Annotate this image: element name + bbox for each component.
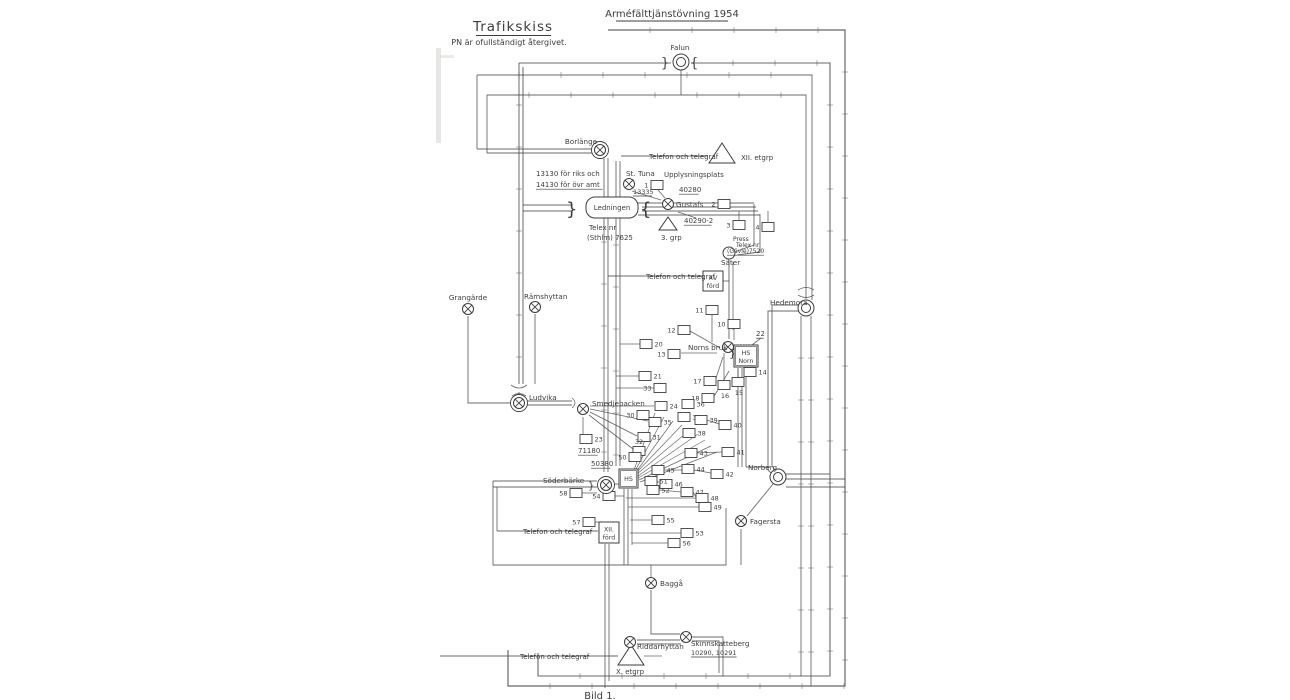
terminal-51: 51 — [645, 477, 668, 486]
unit-label: X. etgrp — [616, 668, 645, 676]
station-label: Ludvika — [529, 393, 557, 402]
annotation-text: 14130 för övr amt — [536, 181, 600, 189]
terminal-number: 40 — [734, 422, 742, 430]
terminal-53: 53 — [681, 529, 704, 538]
terminal-box — [629, 453, 641, 462]
station-label: Skinnskatteberg — [691, 639, 749, 648]
terminal-number: 41 — [737, 449, 745, 457]
terminal-number: 23 — [595, 436, 603, 444]
station-label: Borlänge — [565, 137, 598, 146]
station-fagersta: Fagersta — [736, 516, 781, 527]
terminal-box — [706, 306, 718, 315]
annotation-text: Telefon och telegraf — [522, 528, 593, 536]
terminal-number: 13 — [657, 351, 665, 359]
terminal-box — [696, 494, 708, 503]
terminal-38: 38 — [683, 429, 706, 438]
terminal-box — [732, 378, 744, 387]
unit-label: HS — [624, 476, 633, 483]
unit-label: XII. etgrp — [741, 154, 774, 162]
page-note: PN är ofullständigt återgivet. — [451, 37, 566, 47]
terminal-number: 53 — [696, 530, 704, 538]
annotation-text: (Gävle)7520 — [727, 248, 764, 255]
terminal-13: 13 — [657, 350, 680, 359]
terminal-box — [654, 384, 666, 393]
station-label: Fagersta — [750, 517, 781, 526]
terminal-box — [718, 200, 730, 209]
annotation-text: 13130 för riks och — [536, 170, 600, 178]
unit-label: Ledningen — [594, 204, 631, 212]
terminal-box — [704, 377, 716, 386]
station-number: 10290, 10291 — [691, 649, 737, 657]
unit-label: XII. — [604, 527, 614, 534]
brace-pinch-mark: } — [729, 347, 736, 360]
page-title: Trafikskiss — [472, 19, 553, 35]
annotation-text: 40290-2 — [684, 217, 713, 225]
terminal-2: 2 — [711, 200, 730, 209]
terminal-box — [681, 488, 693, 497]
station-label: Hedemora — [770, 298, 808, 307]
terminal-box — [652, 466, 664, 475]
terminal-33: 33 — [643, 384, 666, 393]
terminal-number: 32 — [635, 438, 643, 446]
unit-label: 3. grp — [661, 234, 682, 242]
terminal-box — [649, 418, 661, 427]
terminal-number: 3 — [726, 222, 730, 230]
terminal-number: 57 — [572, 519, 580, 527]
terminal-number: 30 — [626, 412, 634, 420]
terminal-52: 52 — [647, 486, 670, 495]
terminal-43: 43 — [685, 449, 708, 458]
terminal-number: 52 — [662, 487, 670, 495]
terminal-number: 44 — [697, 466, 705, 474]
terminal-number: 20 — [655, 341, 663, 349]
terminal-box — [733, 221, 745, 230]
scan-smudge — [440, 55, 454, 58]
brace-pinch-mark: { — [690, 56, 698, 71]
station-number: 13335 — [633, 188, 654, 196]
annotation-text: 22 — [756, 330, 765, 338]
figure-caption: Bild 1. — [584, 691, 615, 700]
terminal-box — [728, 320, 740, 329]
station-label: Riddarhyttan — [637, 642, 684, 651]
unit-label: Norn — [738, 358, 753, 365]
annotation-text: (Sthlm) 7625 — [587, 234, 633, 242]
terminal-number: 49 — [714, 504, 722, 512]
scan-smudge — [436, 48, 441, 143]
traffic-sketch-diagram: XII. etgrp3. grpX. etgrpXVfördXII.fördHS… — [0, 0, 1290, 700]
unit-ford-xii: XII.förd — [599, 522, 619, 543]
terminal-box — [681, 529, 693, 538]
terminal-box — [744, 368, 756, 377]
brace-pinch-mark: } — [566, 199, 577, 220]
terminal-number: 12 — [667, 327, 675, 335]
terminal-box — [695, 416, 707, 425]
terminal-box — [647, 486, 659, 495]
station-label: Falun — [671, 43, 690, 52]
terminal-number: 36 — [697, 401, 705, 409]
terminal-10: 10 — [717, 320, 740, 329]
terminal-box — [682, 465, 694, 474]
brace-pinch-mark: } — [588, 481, 594, 492]
terminal-box — [762, 223, 774, 232]
terminal-11: 11 — [695, 306, 718, 315]
terminal-box — [678, 326, 690, 335]
station-label: Säter — [721, 258, 740, 267]
terminal-44: 44 — [682, 465, 705, 474]
station-gustafs: Gustafs — [663, 199, 704, 210]
terminal-number: 45 — [667, 467, 675, 475]
terminal-box — [718, 381, 730, 390]
paper-background — [0, 0, 1290, 700]
station-norns-bruk: Norns bruk — [688, 342, 734, 353]
station-label: Smedjebacken — [592, 399, 645, 408]
terminal-box — [580, 435, 592, 444]
terminal-number: 54 — [592, 493, 600, 501]
terminal-49: 49 — [699, 503, 722, 512]
terminal-number: 24 — [670, 403, 678, 411]
terminal-57: 57 — [572, 518, 595, 527]
station-label: Baggå — [660, 579, 683, 588]
terminal-box — [668, 350, 680, 359]
terminal-number: 31 — [653, 434, 661, 442]
unit-label: förd — [707, 283, 720, 290]
terminal-box — [722, 448, 734, 457]
terminal-box — [685, 449, 697, 458]
terminal-number: 51 — [660, 478, 668, 486]
terminal-number: 11 — [695, 307, 703, 315]
terminal-number: 39 — [710, 417, 718, 425]
station-label: Gustafs — [676, 200, 704, 209]
terminal-box — [570, 489, 582, 498]
terminal-39: 39 — [695, 416, 718, 425]
terminal-box — [678, 413, 690, 422]
terminal-36: 36 — [682, 400, 705, 409]
station-symbol — [673, 54, 689, 70]
terminal-box — [637, 411, 649, 420]
terminal-56: 56 — [668, 539, 691, 548]
station-label: Grangärde — [449, 293, 488, 302]
terminal-40: 40 — [719, 421, 742, 430]
annotation-text: Upplysningsplats — [664, 171, 724, 179]
terminal-3: 3 — [726, 221, 745, 230]
annotation-text: Telex nr — [588, 224, 616, 232]
unit-label: HS — [742, 350, 751, 357]
terminal-number: 55 — [667, 517, 675, 525]
terminal-number: 58 — [559, 490, 567, 498]
terminal-number: 21 — [654, 373, 662, 381]
terminal-number: 43 — [700, 450, 708, 458]
terminal-4: 4 — [755, 223, 774, 232]
station-label: Rämshyttan — [524, 292, 567, 301]
brace-pinch-mark: } — [661, 56, 669, 71]
scanned-page: XII. etgrp3. grpX. etgrpXVfördXII.fördHS… — [0, 0, 1290, 700]
brace-pinch-mark: { — [640, 199, 651, 220]
terminal-number: 35 — [664, 419, 672, 427]
terminal-55: 55 — [652, 516, 675, 525]
station-label: St. Tuna — [626, 169, 655, 178]
annotation-text: 71180 — [578, 447, 600, 455]
terminal-number: 48 — [711, 495, 719, 503]
terminal-number: 17 — [693, 378, 701, 386]
unit-hs-norn: HSNorn — [734, 345, 758, 367]
station-bagga: Baggå — [646, 578, 683, 589]
terminal-box — [652, 516, 664, 525]
terminal-box — [645, 477, 657, 486]
annotation-text: 40280 — [679, 186, 701, 194]
annotation-text: Telefon och telegraf — [648, 153, 719, 161]
terminal-21: 21 — [639, 372, 662, 381]
terminal-number: 16 — [721, 392, 729, 400]
terminal-41: 41 — [722, 448, 745, 457]
terminal-50: 50 — [618, 453, 641, 462]
unit-ledningen: Ledningen — [586, 197, 638, 218]
station-label: Norberg — [748, 463, 777, 472]
terminal-box — [655, 402, 667, 411]
terminal-number: 33 — [643, 385, 651, 393]
terminal-box — [668, 539, 680, 548]
terminal-number: 38 — [698, 430, 706, 438]
terminal-box — [640, 340, 652, 349]
exercise-title: Arméfälttjänstövning 1954 — [605, 8, 739, 20]
terminal-box — [639, 372, 651, 381]
terminal-box — [583, 518, 595, 527]
annotation-text: Telefon och telegraf — [519, 653, 590, 661]
unit-hs: HS — [619, 469, 638, 488]
terminal-35: 35 — [649, 418, 672, 427]
terminal-30: 30 — [626, 411, 649, 420]
terminal-12: 12 — [667, 326, 690, 335]
terminal-14: 14 — [744, 368, 767, 377]
terminal-number: 56 — [683, 540, 691, 548]
terminal-48: 48 — [696, 494, 719, 503]
terminal-17: 17 — [693, 377, 716, 386]
terminal-number: 2 — [711, 201, 715, 209]
terminal-box — [719, 421, 731, 430]
terminal-45: 45 — [652, 466, 675, 475]
terminal-number: 15 — [735, 389, 743, 397]
annotation-text: Telefon och telegraf — [645, 273, 716, 281]
terminal-number: 14 — [759, 369, 767, 377]
terminal-box — [699, 503, 711, 512]
terminal-number: 10 — [717, 321, 725, 329]
terminal-box — [682, 400, 694, 409]
terminal-number: 4 — [755, 224, 759, 232]
terminal-58: 58 — [559, 489, 582, 498]
unit-label: förd — [603, 535, 616, 542]
terminal-23: 23 — [580, 435, 603, 444]
annotation-text: 50380 — [591, 460, 613, 468]
station-label: Norns bruk — [688, 343, 728, 352]
terminal-number: 50 — [618, 454, 626, 462]
terminal-box — [683, 429, 695, 438]
terminal-42: 42 — [711, 470, 734, 479]
station-label: Söderbärke — [543, 476, 585, 485]
terminal-20: 20 — [640, 340, 663, 349]
terminal-box — [711, 470, 723, 479]
terminal-number: 42 — [726, 471, 734, 479]
terminal-24: 24 — [655, 402, 678, 411]
